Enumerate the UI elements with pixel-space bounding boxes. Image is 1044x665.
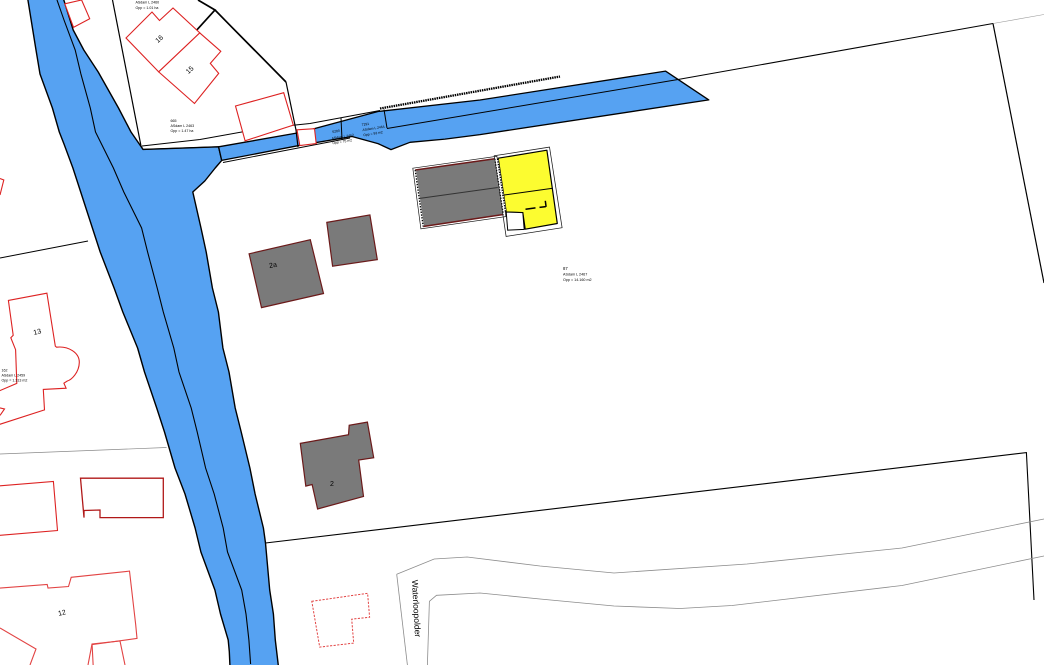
svg-text:Opp = 1.01 ha: Opp = 1.01 ha bbox=[136, 6, 159, 10]
svg-text:ASdam L 2467: ASdam L 2467 bbox=[563, 273, 587, 277]
svg-text:Opp = 1.47 ha: Opp = 1.47 ha bbox=[171, 129, 194, 133]
svg-text:87: 87 bbox=[563, 266, 568, 271]
svg-text:2: 2 bbox=[330, 481, 334, 488]
svg-text:ASdam L 2460: ASdam L 2460 bbox=[136, 1, 160, 5]
svg-text:665: 665 bbox=[171, 119, 177, 123]
svg-text:Opp = 1.313 m2: Opp = 1.313 m2 bbox=[2, 379, 28, 383]
svg-text:ASdam L 2463: ASdam L 2463 bbox=[171, 124, 195, 128]
svg-text:ASdam L 2459: ASdam L 2459 bbox=[2, 374, 26, 378]
svg-text:162: 162 bbox=[2, 369, 8, 373]
svg-text:Opp = 14.160 m2: Opp = 14.160 m2 bbox=[563, 278, 592, 282]
svg-text:2a: 2a bbox=[269, 262, 278, 270]
